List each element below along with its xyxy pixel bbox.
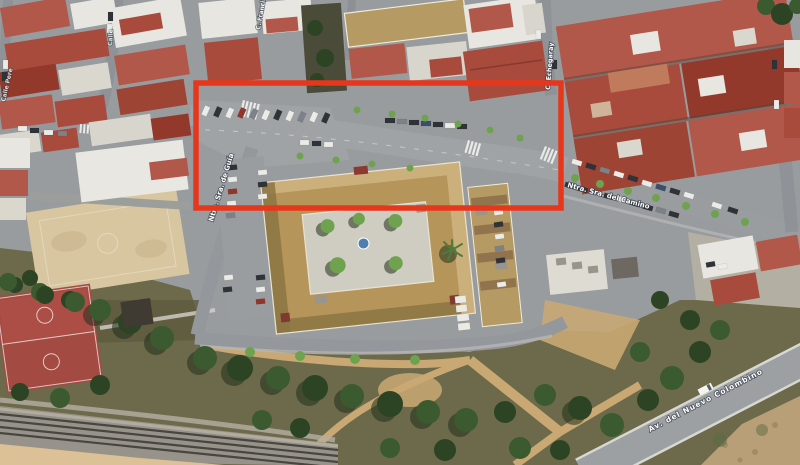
- street-label-calle: Calle: [107, 29, 115, 46]
- school-building: [260, 156, 475, 334]
- satellite-map-view[interactable]: Ntra. Sra. de Guía Ntra. Sra. del Camino…: [0, 0, 800, 465]
